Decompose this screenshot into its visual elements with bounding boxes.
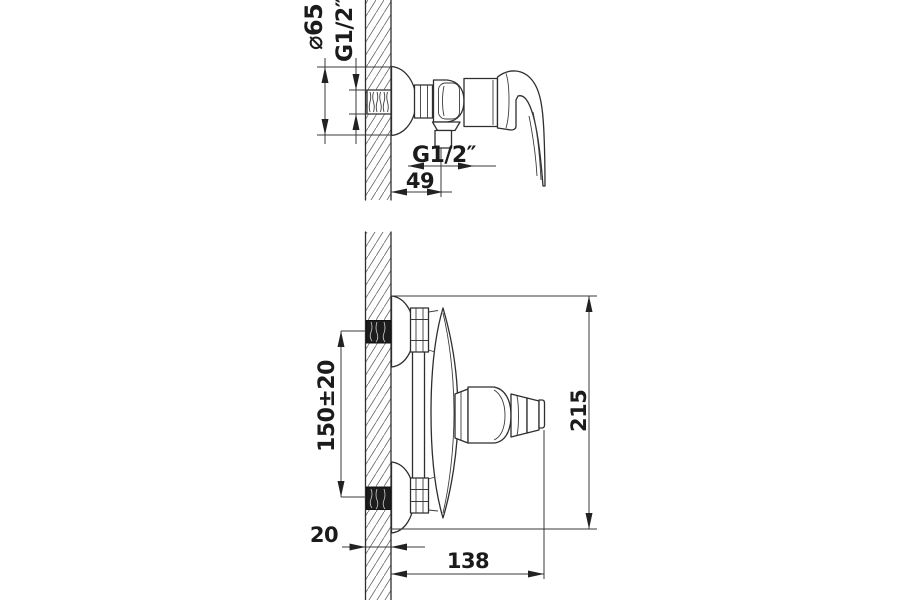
technical-drawing-page: ⌀65 G1/2″ G1/2″ 49 <box>0 0 900 600</box>
valve-cap <box>434 80 465 122</box>
dim-label-215: 215 <box>567 390 591 432</box>
hex-nut-side <box>415 85 433 118</box>
hex-nut-top <box>411 308 429 352</box>
inlet-connector-bottom <box>367 487 391 510</box>
dim-label-diameter-65: ⌀65 <box>300 4 328 50</box>
hex-nut-bottom <box>411 478 429 513</box>
mixer-installation-drawing: ⌀65 G1/2″ G1/2″ 49 <box>0 0 900 600</box>
inlet-thread-pipe <box>367 90 391 114</box>
inlet-connector-top <box>367 321 391 344</box>
dim-label-wall-thread: G1/2″ <box>333 0 358 62</box>
dim-label-49: 49 <box>406 169 434 193</box>
wall-section-bottom <box>365 232 391 600</box>
mixer-body-side <box>464 79 498 127</box>
dim-label-138: 138 <box>447 549 489 573</box>
dim-label-20: 20 <box>310 523 338 547</box>
dim-label-150-20: 150±20 <box>315 360 340 452</box>
dim-label-outlet-thread: G1/2″ <box>412 143 477 168</box>
